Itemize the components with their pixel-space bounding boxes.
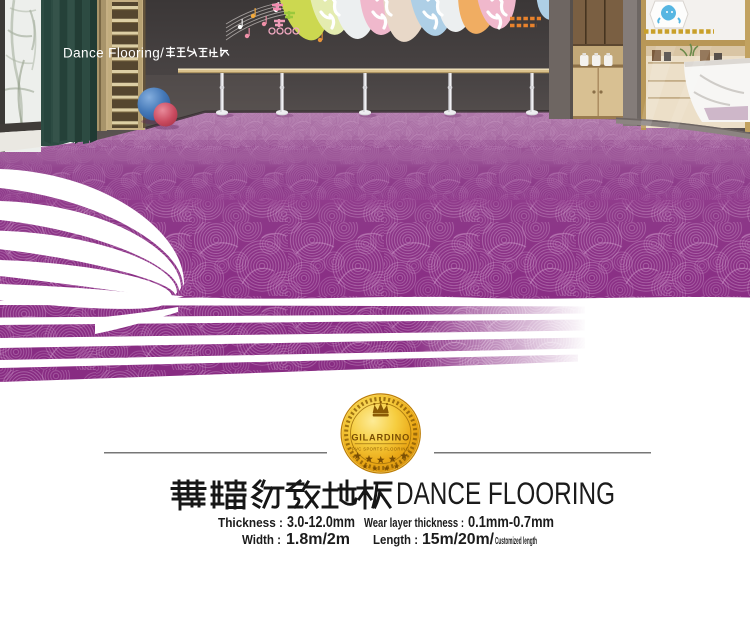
svg-text:Thickness :: Thickness :	[218, 515, 283, 530]
svg-text:3.0-12.0mm: 3.0-12.0mm	[287, 514, 355, 531]
svg-text:PVC SPORTS FLOORING: PVC SPORTS FLOORING	[352, 447, 410, 452]
svg-text:GILARDINO: GILARDINO	[351, 433, 410, 443]
svg-text:Length :: Length :	[373, 532, 418, 547]
svg-text:Dance Flooring/: Dance Flooring/	[63, 46, 164, 61]
svg-text:1.8m/2m: 1.8m/2m	[286, 531, 350, 548]
svg-text:DANCE FLOORING: DANCE FLOORING	[396, 475, 615, 511]
svg-text:Wear layer thickness :: Wear layer thickness :	[364, 515, 464, 530]
svg-text:Customized length: Customized length	[495, 535, 537, 547]
svg-text:15m/20m/: 15m/20m/	[422, 531, 495, 548]
svg-text:0.1mm-0.7mm: 0.1mm-0.7mm	[468, 514, 554, 531]
svg-text:Width :: Width :	[242, 532, 281, 547]
